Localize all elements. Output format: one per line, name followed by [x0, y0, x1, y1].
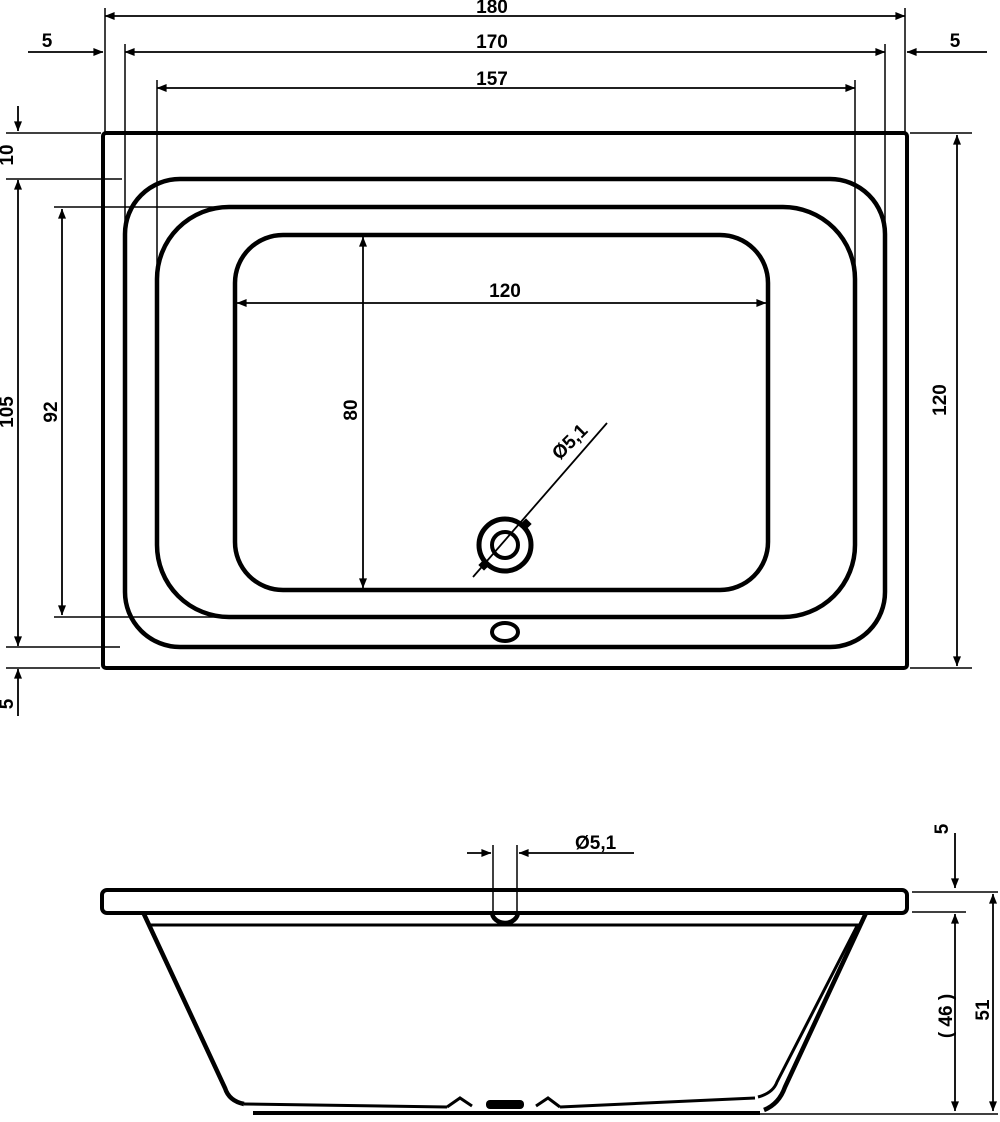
- dim-label-bottom-gap: 5: [0, 698, 18, 709]
- dim-label-side-gap-right: 5: [950, 31, 961, 52]
- dim-label-side-gap-left: 5: [42, 31, 53, 52]
- side-view-extension-lines: [912, 892, 998, 912]
- side-drain-dimension: Ø5,1: [467, 833, 634, 854]
- dim-label-rim-inner-height: 105: [0, 396, 18, 428]
- dim-label-top-gap: 10: [0, 144, 18, 165]
- top-view-dimension-labels: 180 170 157 5 5 10 105 5 92 120 120 80: [0, 0, 961, 709]
- dim-label-rim-inner-width: 170: [476, 32, 508, 53]
- side-floor-top-left: [244, 1104, 447, 1107]
- side-rim-deck: [102, 890, 907, 913]
- drawing-sheet: Ø5,1: [0, 0, 1000, 1122]
- dim-label-rim-thickness: 5: [932, 823, 953, 834]
- basin-top-edge: [157, 207, 855, 617]
- dim-label-overall-width: 180: [476, 0, 508, 18]
- side-left-wall: [143, 912, 244, 1104]
- side-floor-top-right: [560, 1098, 755, 1107]
- bathtub-drawing-svg: Ø5,1: [0, 0, 1000, 1122]
- dim-label-floor-height: 80: [341, 399, 362, 420]
- dim-label-side-drain-diameter: Ø5,1: [575, 833, 617, 854]
- side-view-dimension-lines: [955, 833, 993, 1111]
- top-view-dimension-lines: [18, 16, 987, 716]
- dim-label-floor-width: 120: [489, 281, 521, 302]
- dim-label-body-height: ( 46 ): [936, 994, 957, 1038]
- side-view-dimension-labels: 5 ( 46 ) 51: [932, 823, 994, 1038]
- drain-leader-line: [473, 423, 607, 577]
- dim-label-overall-height: 120: [930, 384, 951, 416]
- side-floor-drain-fitting: [447, 1098, 560, 1109]
- dim-label-basin-top-width: 157: [476, 69, 508, 90]
- side-right-wall-inner: [758, 926, 857, 1097]
- top-view: Ø5,1: [0, 0, 987, 716]
- side-view: Ø5,1 5 ( 46 ) 51: [102, 823, 998, 1114]
- drain-inner-circle: [492, 532, 518, 558]
- top-view-extension-lines: [6, 8, 972, 668]
- dim-label-total-height: 51: [973, 999, 994, 1021]
- dim-label-basin-top-height: 92: [41, 401, 62, 422]
- overflow-hole: [492, 623, 518, 641]
- drain-plan: Ø5,1: [473, 420, 607, 577]
- dim-label-drain-diameter: Ø5,1: [548, 420, 592, 464]
- rim-inner-edge: [125, 179, 885, 647]
